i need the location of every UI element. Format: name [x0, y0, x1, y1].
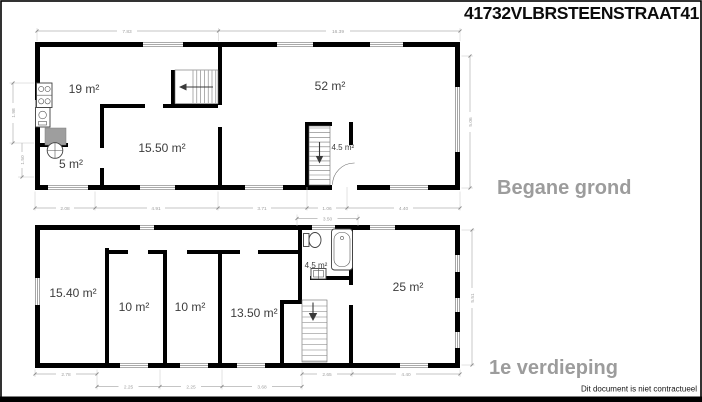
staircase-up: [175, 70, 218, 104]
svg-text:3.68: 3.68: [257, 384, 267, 390]
svg-text:16.39: 16.39: [332, 29, 344, 35]
oven-icon: [36, 108, 51, 128]
floorplan-drawing: 19 m² 15.50 m² 5 m² 52 m² 4.5 m² 7.83 16…: [0, 0, 702, 402]
ground-windows: [36, 43, 460, 190]
room-area-label: 52 m²: [315, 79, 346, 93]
svg-text:2.78: 2.78: [61, 372, 71, 378]
staircase-down-ground: [309, 126, 330, 185]
room-area-label: 13.50 m²: [230, 306, 277, 320]
bathtub-icon: [332, 229, 353, 270]
room-area-label: 10 m²: [119, 300, 150, 314]
first-outer-walls: [35, 225, 460, 368]
floor-caption-ground: Begane grond: [497, 177, 631, 199]
room-area-label: 25 m²: [393, 280, 424, 294]
svg-text:3.50: 3.50: [323, 216, 333, 222]
svg-text:2.25: 2.25: [124, 384, 134, 390]
ground-interior-walls: [37, 47, 353, 185]
svg-text:4.91: 4.91: [151, 206, 161, 212]
staircase-down-first: [302, 300, 327, 362]
document-title: 41732VLBRSTEENSTRAAT41: [464, 3, 700, 23]
ground-outer-walls: [35, 42, 460, 190]
stairs-direction-arrow-icon: [316, 142, 323, 164]
ground-dimensions: 7.83 16.39 2.08 4.91 3.71 1.06 4.40 5.06…: [10, 28, 475, 212]
room-area-label: 4.5 m²: [305, 261, 328, 270]
toilet-icon: [304, 233, 322, 248]
svg-text:1.98: 1.98: [11, 108, 17, 118]
svg-text:1.06: 1.06: [322, 206, 332, 212]
floor-caption-first: 1e verdieping: [489, 357, 618, 379]
bathroom-fixtures: [304, 229, 353, 279]
svg-text:2.25: 2.25: [186, 384, 196, 390]
room-area-label: 4.5 m²: [332, 143, 355, 152]
svg-text:1.50: 1.50: [20, 155, 26, 165]
room-area-label: 15.50 m²: [138, 141, 185, 155]
svg-text:3.71: 3.71: [257, 206, 267, 212]
room-area-label: 15.40 m²: [49, 286, 96, 300]
floorplan-document: 19 m² 15.50 m² 5 m² 52 m² 4.5 m² 7.83 16…: [0, 0, 702, 402]
svg-text:5.06: 5.06: [468, 117, 474, 127]
svg-text:4.40: 4.40: [399, 206, 409, 212]
first-interior-walls: [105, 230, 353, 368]
bottom-bar: [0, 397, 702, 402]
disclaimer-text: Dit document is niet contractueel: [581, 385, 697, 394]
svg-text:5.51: 5.51: [470, 293, 476, 303]
washbasin-icon: [47, 143, 63, 159]
room-area-label: 10 m²: [175, 300, 206, 314]
svg-text:2.08: 2.08: [60, 206, 70, 212]
room-area-label: 19 m²: [69, 82, 100, 96]
ground-floor-plan: 19 m² 15.50 m² 5 m² 52 m² 4.5 m² 7.83 16…: [10, 28, 475, 212]
stove-icon: [37, 83, 53, 108]
first-windows: [36, 226, 460, 368]
first-floor-plan: 15.40 m² 10 m² 10 m² 13.50 m² 4.5 m² 25 …: [34, 215, 477, 391]
svg-text:7.83: 7.83: [122, 29, 132, 35]
sink-icon: [311, 269, 326, 280]
svg-text:2.65: 2.65: [322, 372, 332, 378]
kitchen-fixtures: [36, 83, 67, 158]
room-area-label: 5 m²: [59, 157, 83, 171]
svg-text:4.40: 4.40: [401, 372, 411, 378]
door-arc: [333, 163, 355, 185]
